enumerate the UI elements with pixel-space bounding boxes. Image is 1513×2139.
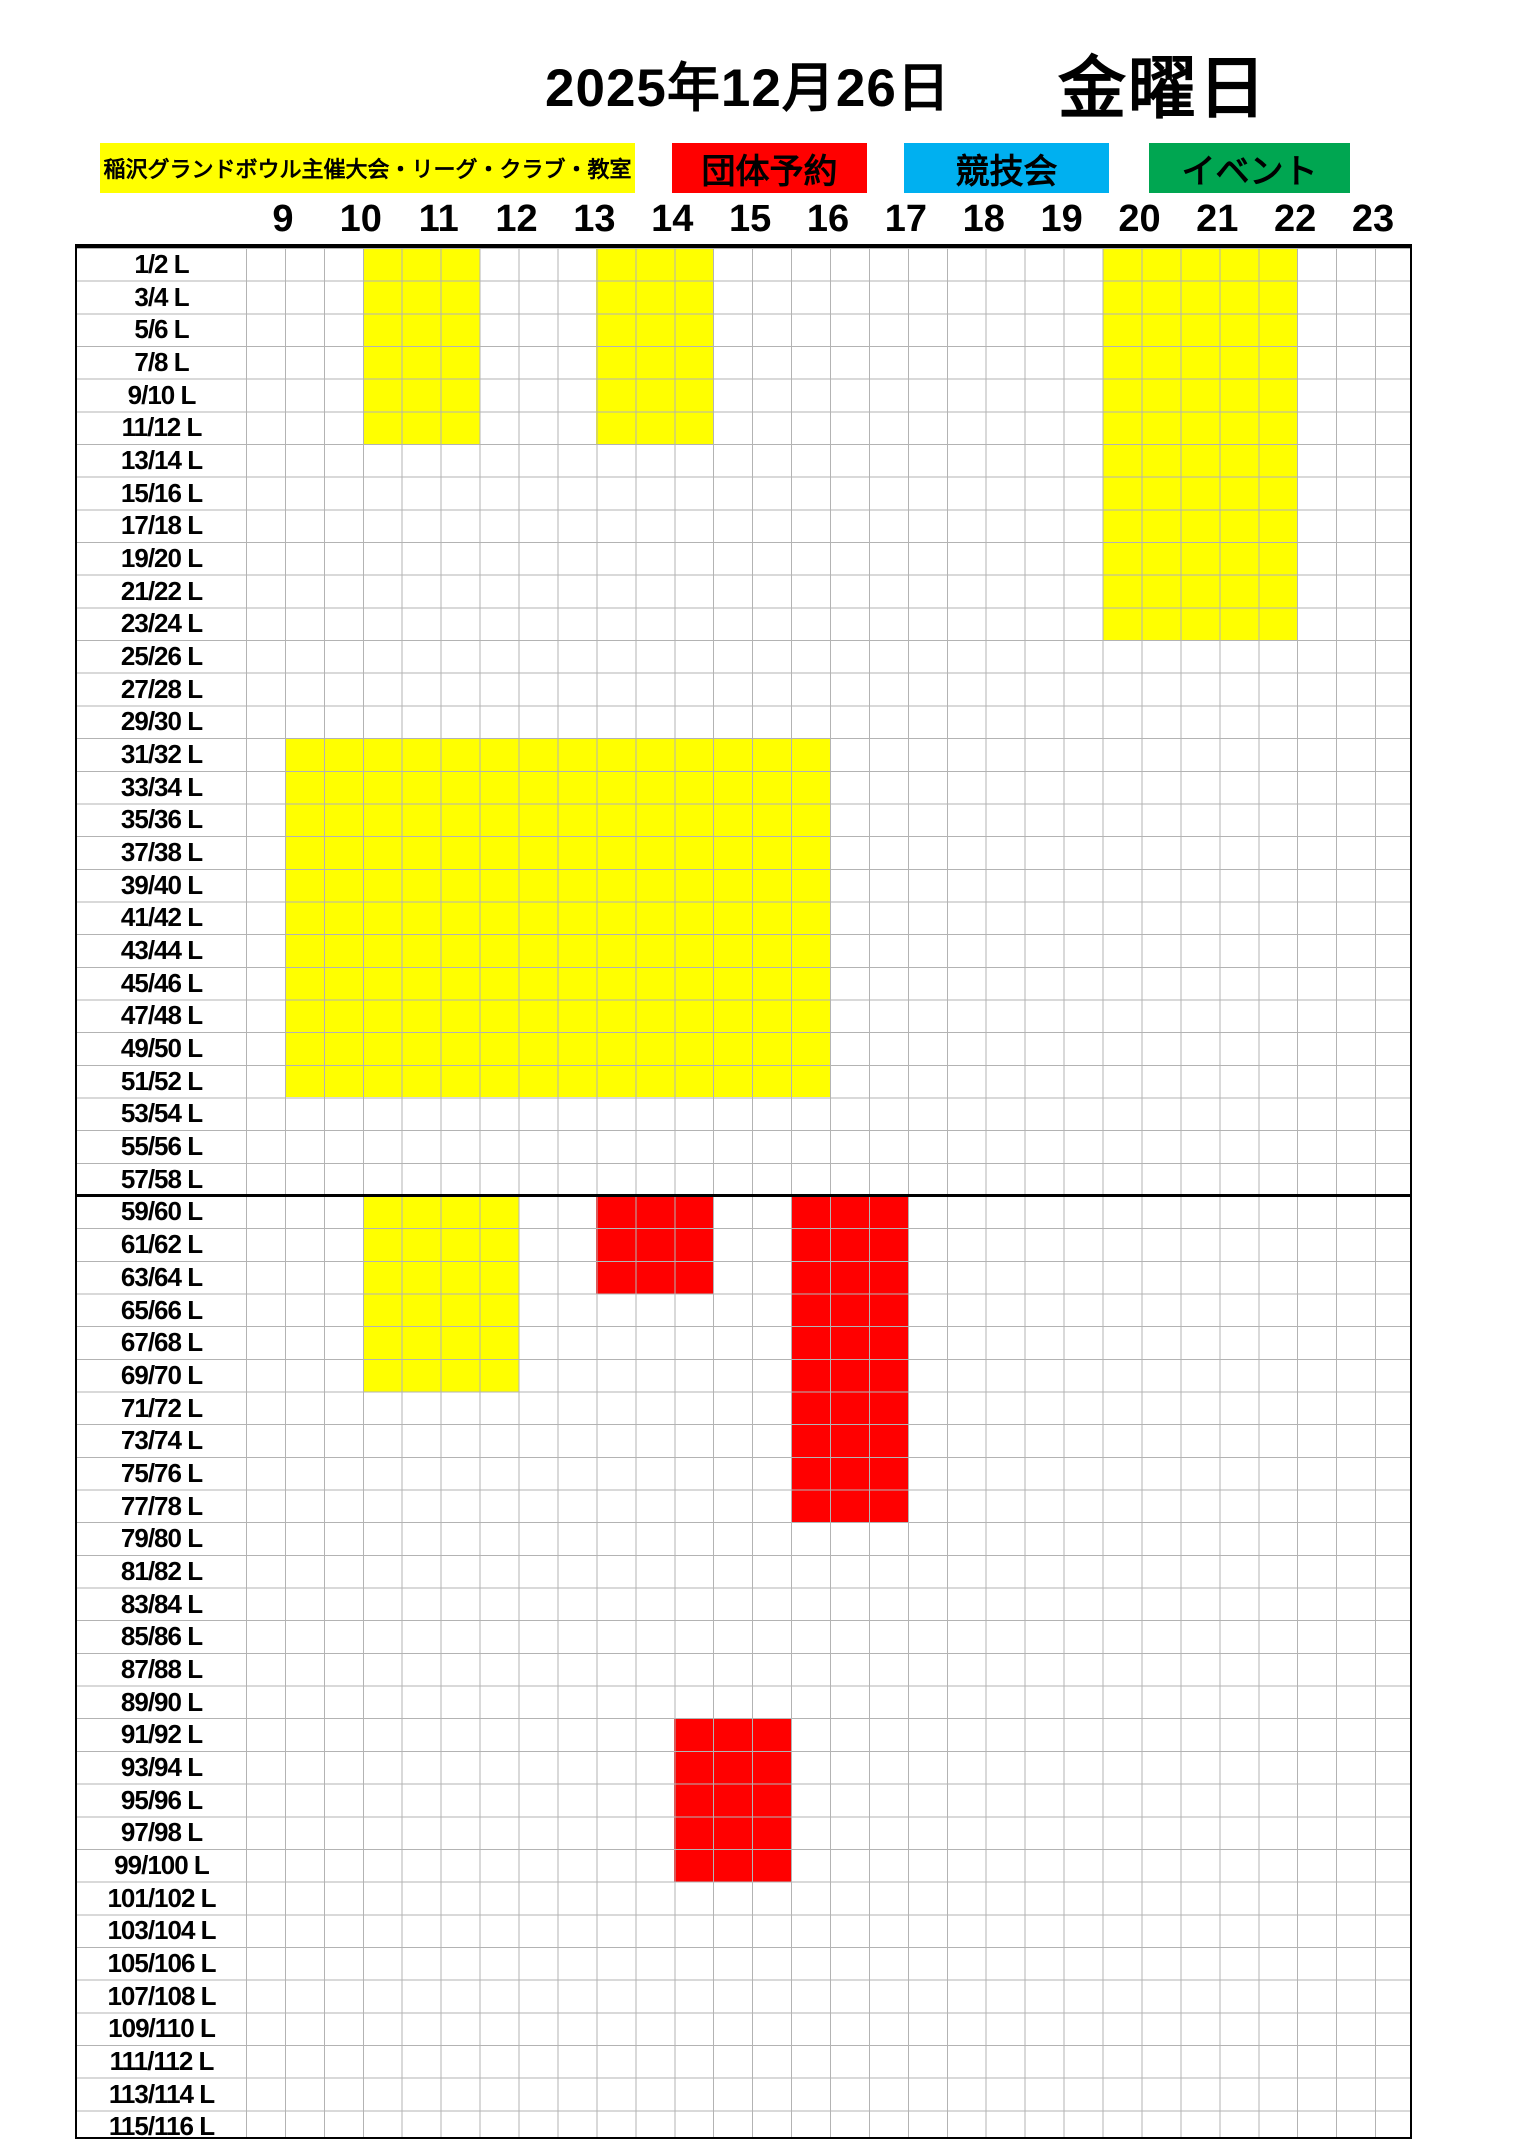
lane-label: 67/68 L [77,1326,246,1359]
legend-item-group: 団体予約 [672,143,867,193]
hour-label-19: 19 [1040,194,1082,244]
legend-item-event: イベント [1149,143,1350,193]
lane-label: 89/90 L [77,1686,246,1719]
lane-label: 111/112 L [77,2045,246,2078]
lane-label: 49/50 L [77,1032,246,1065]
hour-label-9: 9 [272,194,293,244]
lane-label: 41/42 L [77,901,246,934]
lane-label: 115/116 L [77,2110,246,2139]
lane-label: 35/36 L [77,803,246,836]
reservation-block-league [363,1195,519,1391]
lane-label: 57/58 L [77,1163,246,1196]
lane-label: 61/62 L [77,1228,246,1261]
legend-item-league: 稲沢グランドボウル主催大会・リーグ・クラブ・教室 [100,143,635,193]
reservation-block-group [596,1195,713,1293]
lane-label: 1/2 L [77,248,246,281]
lane-label: 31/32 L [77,738,246,771]
hour-label-18: 18 [963,194,1005,244]
lane-label: 39/40 L [77,869,246,902]
hour-label-10: 10 [340,194,382,244]
legend-label-group: 団体予約 [702,144,838,193]
lane-label: 63/64 L [77,1261,246,1294]
reservation-block-league [1103,248,1298,640]
lane-label: 5/6 L [77,313,246,346]
lane-label: 3/4 L [77,281,246,314]
lane-label: 109/110 L [77,2012,246,2045]
reservation-blocks-layer [77,248,1410,2137]
lane-label: 73/74 L [77,1424,246,1457]
lane-label: 23/24 L [77,607,246,640]
lane-label: 19/20 L [77,542,246,575]
hour-label-17: 17 [885,194,927,244]
lane-label: 13/14 L [77,444,246,477]
hour-label-14: 14 [651,194,693,244]
lane-label: 75/76 L [77,1457,246,1490]
hour-label-12: 12 [495,194,537,244]
lane-label: 91/92 L [77,1718,246,1751]
hour-label-20: 20 [1118,194,1160,244]
lane-label: 113/114 L [77,2078,246,2111]
lane-label: 53/54 L [77,1097,246,1130]
hour-label-23: 23 [1352,194,1394,244]
lane-label: 27/28 L [77,673,246,706]
lane-label: 71/72 L [77,1392,246,1425]
hour-label-16: 16 [807,194,849,244]
lane-label: 29/30 L [77,705,246,738]
section-separator-line [77,1194,1410,1197]
lane-label: 25/26 L [77,640,246,673]
lane-label: 103/104 L [77,1914,246,1947]
lane-label: 11/12 L [77,411,246,444]
page-title-weekday: 金曜日 [1058,33,1268,132]
lane-label: 77/78 L [77,1490,246,1523]
hour-label-22: 22 [1274,194,1316,244]
lane-schedule-page: 2025年12月26日 金曜日 稲沢グランドボウル主催大会・リーグ・クラブ・教室… [0,0,1513,2139]
lane-label: 69/70 L [77,1359,246,1392]
legend-item-competition: 競技会 [904,143,1109,193]
lane-label: 95/96 L [77,1784,246,1817]
lane-label: 105/106 L [77,1947,246,1980]
lane-label: 101/102 L [77,1882,246,1915]
hour-axis: 91011121314151617181920212223 [75,194,1412,244]
lane-label: 37/38 L [77,836,246,869]
lane-label: 21/22 L [77,575,246,608]
lane-label: 85/86 L [77,1620,246,1653]
lane-label: 45/46 L [77,967,246,1000]
reservation-block-league [363,248,480,444]
lane-label: 51/52 L [77,1065,246,1098]
lane-label: 107/108 L [77,1980,246,2013]
lane-label: 15/16 L [77,477,246,510]
lane-label: 65/66 L [77,1294,246,1327]
page-title-date: 2025年12月26日 [545,46,951,122]
lane-label: 47/48 L [77,999,246,1032]
lane-label: 9/10 L [77,379,246,412]
legend-label-competition: 競技会 [956,144,1058,193]
hour-label-13: 13 [573,194,615,244]
hour-label-15: 15 [729,194,771,244]
legend-label-league: 稲沢グランドボウル主催大会・リーグ・クラブ・教室 [103,152,631,184]
hour-label-21: 21 [1196,194,1238,244]
lane-label: 79/80 L [77,1522,246,1555]
lane-label: 87/88 L [77,1653,246,1686]
hour-label-11: 11 [419,194,459,244]
lane-label: 83/84 L [77,1588,246,1621]
lane-label: 33/34 L [77,771,246,804]
lane-label-column: 1/2 L3/4 L5/6 L7/8 L9/10 L11/12 L13/14 L… [77,248,246,2137]
reservation-block-league [596,248,713,444]
lane-label: 99/100 L [77,1849,246,1882]
lane-label: 17/18 L [77,509,246,542]
lane-label: 55/56 L [77,1130,246,1163]
reservation-block-group [674,1718,791,1881]
reservation-block-league [285,738,830,1097]
lane-label: 93/94 L [77,1751,246,1784]
lane-label: 7/8 L [77,346,246,379]
legend-label-event: イベント [1182,144,1318,193]
schedule-grid: 1/2 L3/4 L5/6 L7/8 L9/10 L11/12 L13/14 L… [75,244,1412,2139]
lane-label: 59/60 L [77,1195,246,1228]
lane-label: 81/82 L [77,1555,246,1588]
lane-label: 97/98 L [77,1816,246,1849]
lane-label: 43/44 L [77,934,246,967]
reservation-block-group [791,1195,908,1522]
